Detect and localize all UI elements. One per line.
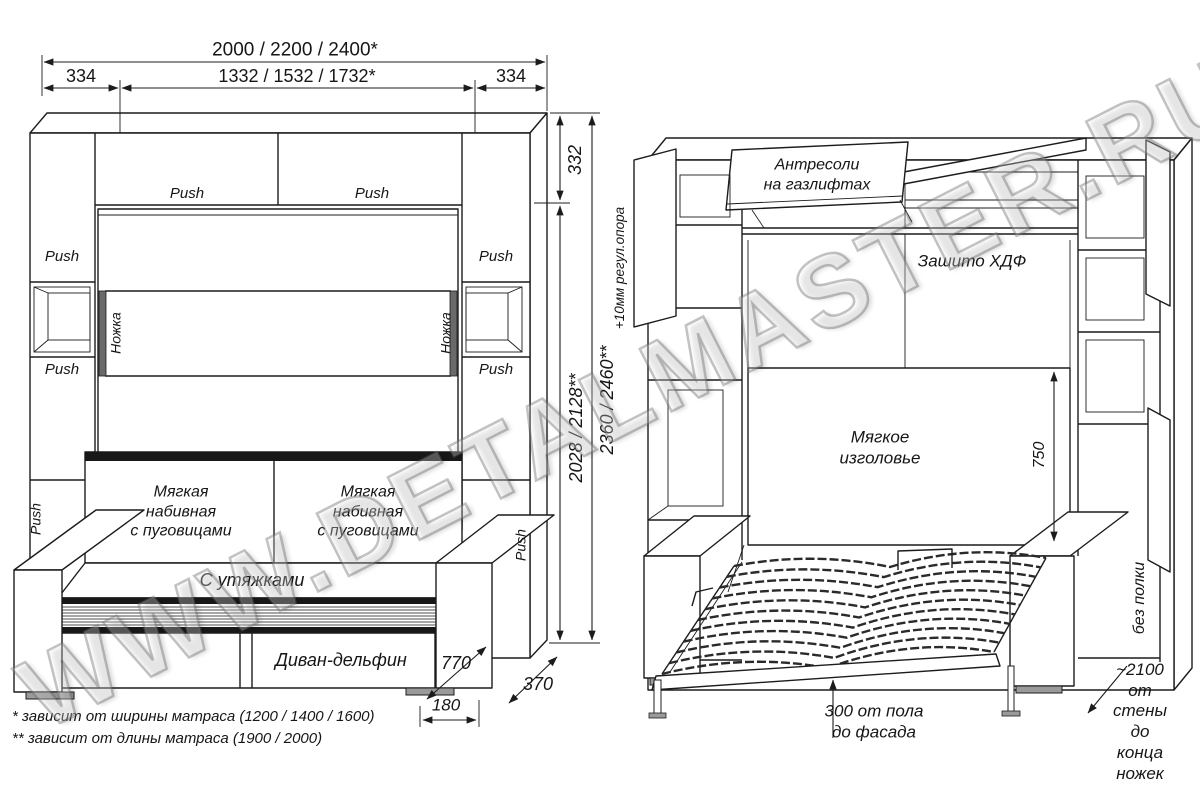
push-label: Push bbox=[512, 529, 529, 561]
dim-side-right: 334 bbox=[496, 66, 526, 88]
dim-top-section-height: 332 bbox=[565, 145, 587, 175]
technical-drawing-page: 2000 / 2200 / 2400* 334 1332 / 1532 / 17… bbox=[0, 0, 1200, 800]
push-label: Push bbox=[45, 361, 79, 379]
dim-headboard-height: 750 bbox=[1030, 442, 1050, 469]
footnote-length: ** зависит от длины матраса (1900 / 2000… bbox=[12, 730, 322, 747]
push-label: Push bbox=[479, 248, 513, 266]
push-label: Push bbox=[45, 248, 79, 266]
no-shelf-label: без полки bbox=[1130, 562, 1150, 634]
push-label: Push bbox=[170, 185, 204, 203]
headboard-label: Мягкое изголовье bbox=[840, 427, 921, 468]
dim-sofa-depth: 770 bbox=[441, 653, 471, 675]
push-label: Push bbox=[27, 503, 44, 535]
dim-support-note: +10мм регул.опора bbox=[612, 207, 628, 329]
dim-total-height: 2360 / 2460** bbox=[597, 345, 619, 454]
dim-inner-height: 2028 / 2128** bbox=[566, 373, 588, 482]
antresol-label: Антресоли на газлифтах bbox=[764, 155, 871, 194]
dim-plinth-depth: 180 bbox=[432, 696, 460, 717]
closed-view-drawing bbox=[14, 113, 554, 699]
cushion-label: Мягкая набивная с пуговицами bbox=[317, 483, 418, 542]
back-panel-label: Зашито ХДФ bbox=[918, 252, 1026, 273]
footnote-width: * зависит от ширины матраса (1200 / 1400… bbox=[12, 708, 375, 725]
push-label: Push bbox=[355, 185, 389, 203]
seat-label: С утяжками bbox=[200, 570, 305, 592]
leg-label: Ножка bbox=[107, 312, 124, 354]
push-label: Push bbox=[479, 361, 513, 379]
dim-cabinet-depth: 370 bbox=[523, 674, 553, 696]
floor-clearance-label: 300 от пола до фасада bbox=[825, 701, 924, 742]
dim-total-width: 2000 / 2200 / 2400* bbox=[212, 38, 378, 61]
dim-side-left: 334 bbox=[66, 66, 96, 88]
wall-to-legs-label: ~2100 от стены до конца ножек bbox=[1110, 660, 1170, 784]
cushion-label: Мягкая набивная с пуговицами bbox=[130, 483, 231, 542]
leg-label: Ножка bbox=[437, 312, 454, 354]
dim-inner-width: 1332 / 1532 / 1732* bbox=[218, 66, 375, 88]
sofa-type-label: Диван-дельфин bbox=[275, 650, 407, 672]
